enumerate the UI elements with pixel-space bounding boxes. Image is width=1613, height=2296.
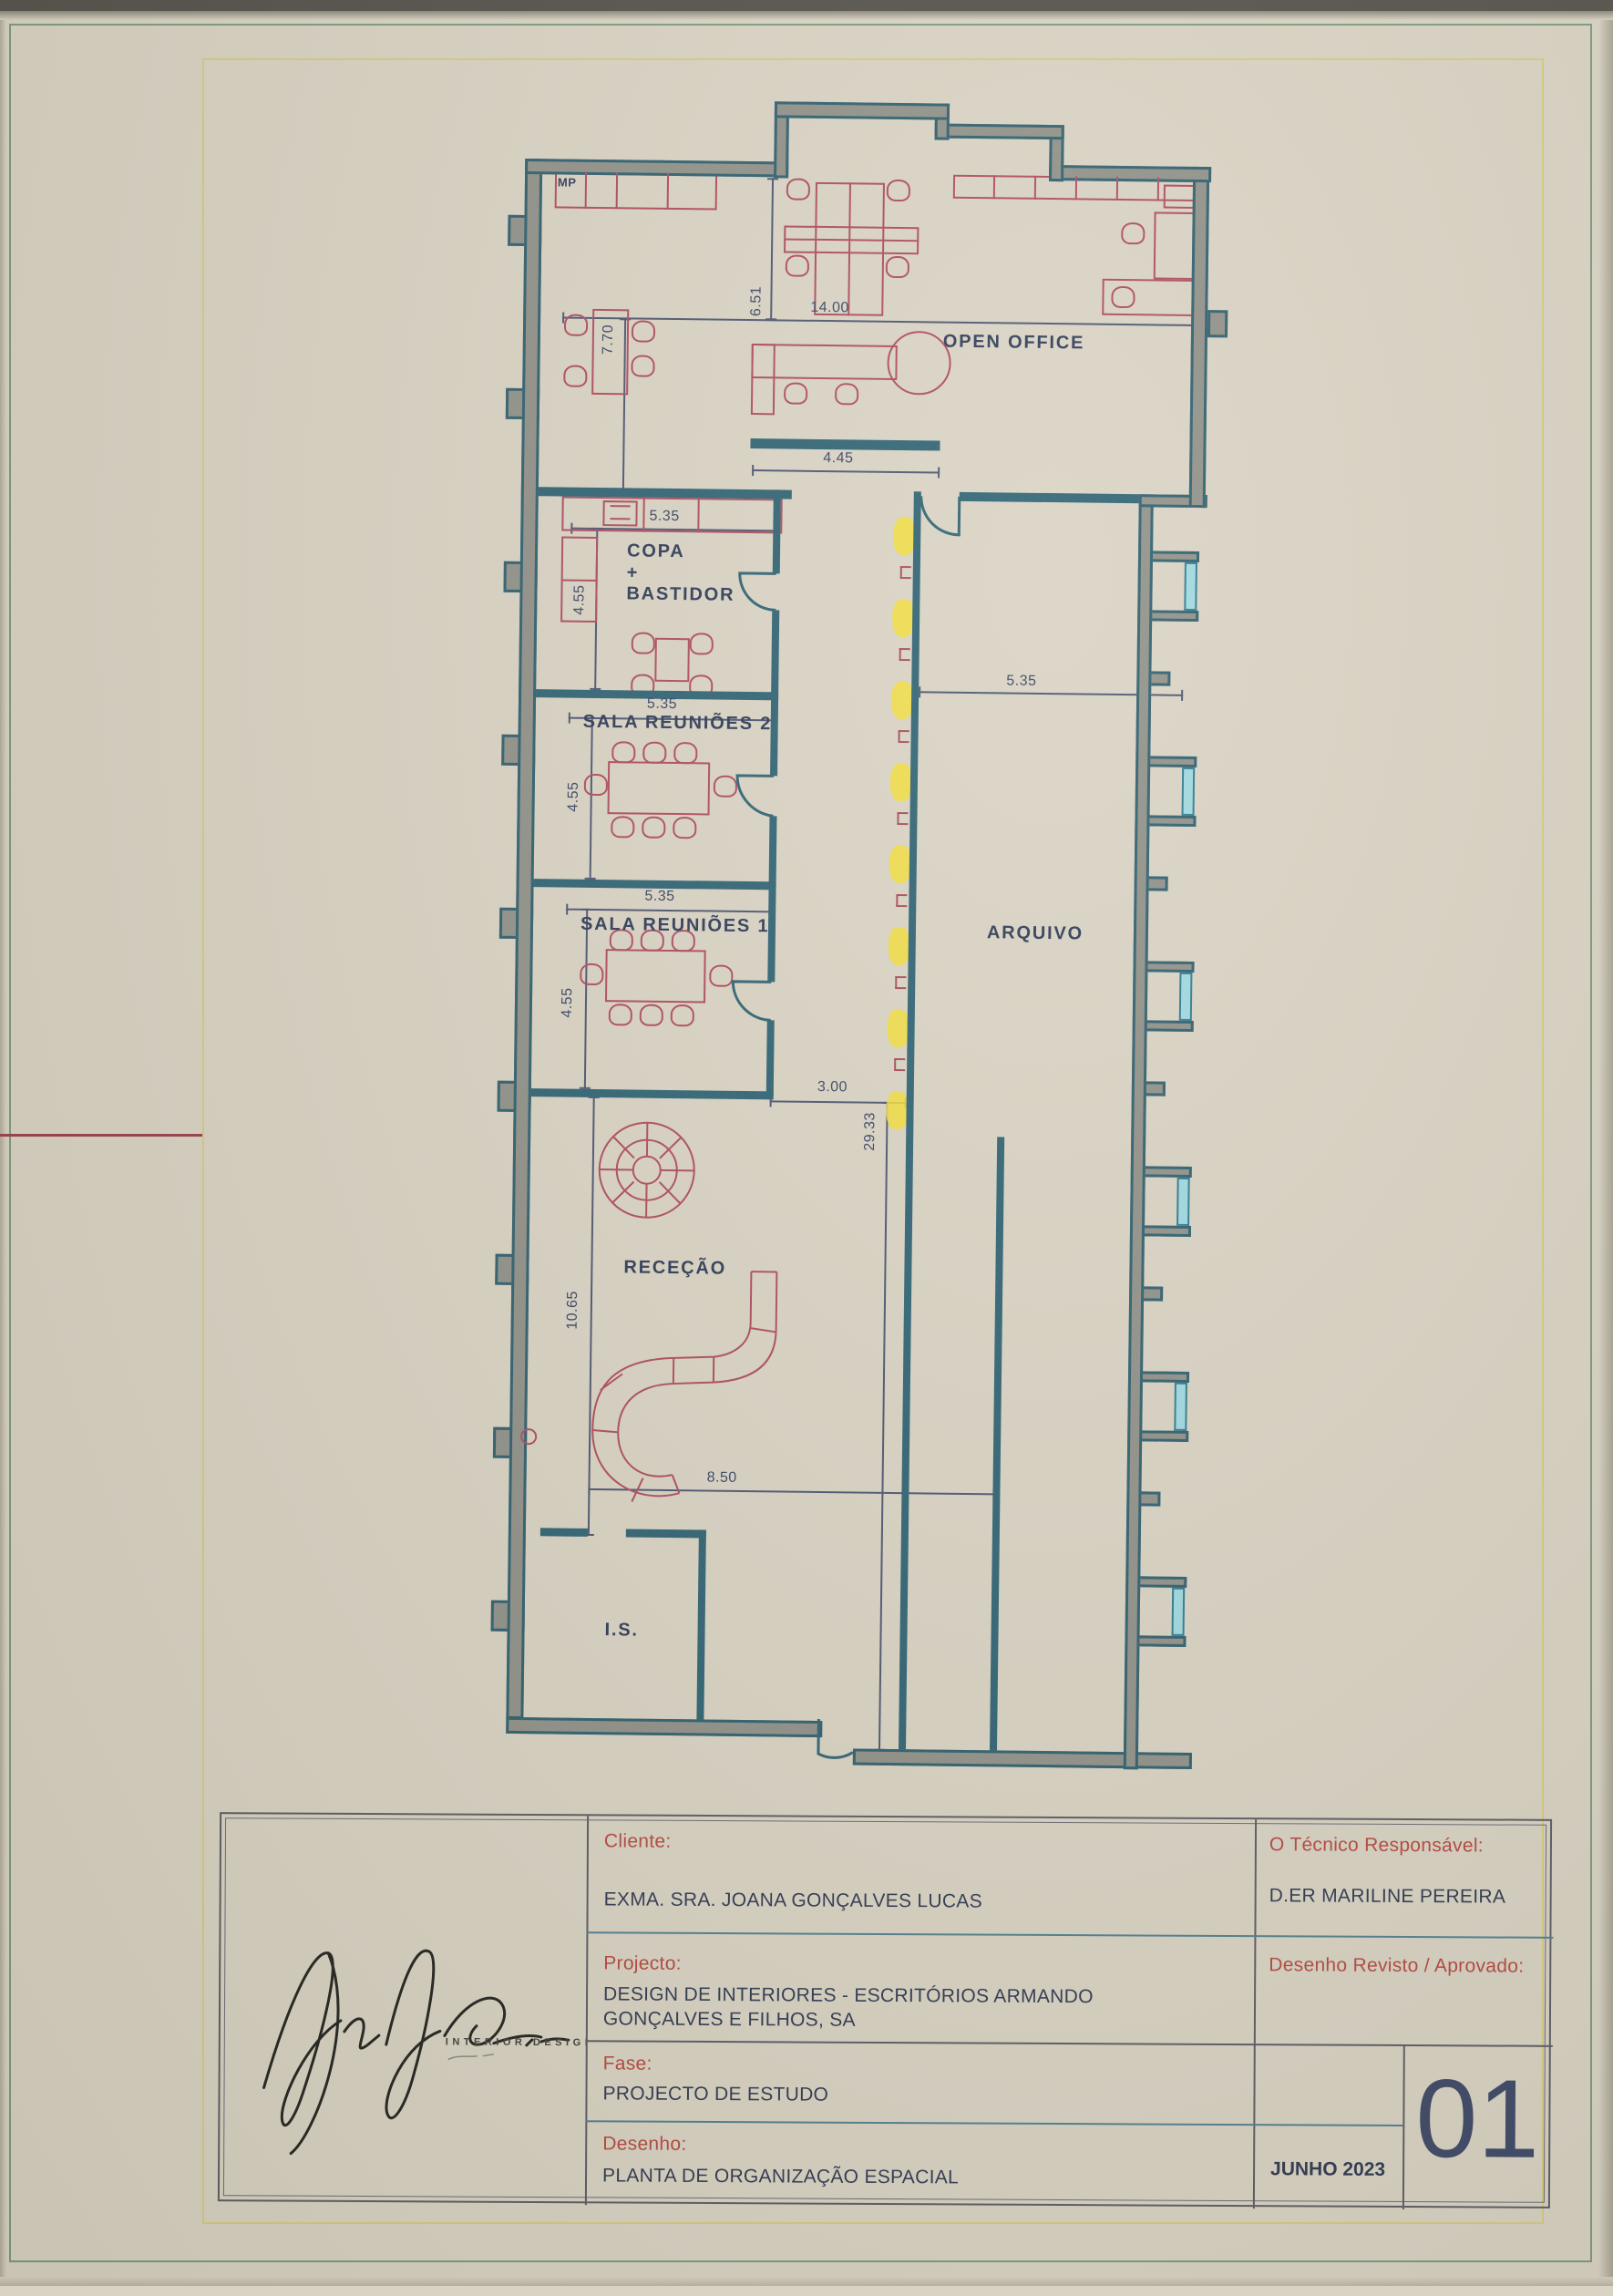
- room-label-copa: COPA: [627, 541, 685, 562]
- revisto-label: Desenho Revisto / Aprovado:: [1269, 1954, 1524, 1977]
- door-swings: [724, 494, 960, 1759]
- room-label-sala-reunioes-2: SALA REUNIÕES 2: [583, 712, 773, 736]
- tecnico-value: D.ER MARILINE PEREIRA: [1269, 1885, 1506, 1908]
- cliente-value: EXMA. SRA. JOANA GONÇALVES LUCAS: [604, 1889, 982, 1912]
- room-label-sala-reunioes-1: SALA REUNIÕES 1: [580, 914, 770, 938]
- dim-6-51: 6.51: [748, 286, 765, 316]
- dim-corridor-width: 3.00: [817, 1079, 848, 1096]
- photographed-floor-plan-sheet: { "plan": { "rooms": { "open_office": "O…: [0, 0, 1613, 2286]
- projecto-value-line2: GONÇALVES E FILHOS, SA: [603, 2008, 856, 2031]
- dim-sr2-width: 5.35: [647, 696, 677, 713]
- sheet-number: 01: [1402, 2063, 1553, 2175]
- desenho-label: Desenho:: [602, 2133, 686, 2155]
- dim-copa-width: 5.35: [649, 509, 679, 525]
- dim-copa-depth: 4.55: [571, 584, 588, 614]
- dim-rececao-width: 8.50: [707, 1470, 737, 1487]
- dim-sr2-depth: 4.55: [566, 781, 582, 811]
- room-label-mp: MP: [558, 175, 577, 189]
- dim-14-00: 14.00: [810, 300, 849, 317]
- projecto-label: Projecto:: [603, 1952, 682, 1974]
- room-label-is: I.S.: [604, 1620, 638, 1641]
- signature: [263, 1950, 569, 2155]
- cliente-label: Cliente:: [604, 1830, 672, 1852]
- room-label-copa-plus: +: [627, 562, 640, 583]
- dim-4-45: 4.45: [823, 450, 853, 467]
- desenho-value: PLANTA DE ORGANIZAÇÃO ESPACIAL: [602, 2165, 959, 2188]
- reception-desk: [618, 1270, 777, 1477]
- logo-cell: INTERIOR DESIGN: [220, 1814, 587, 2205]
- room-label-open-office: OPEN OFFICE: [943, 332, 1085, 355]
- dim-7-70: 7.70: [601, 324, 617, 355]
- room-label-bastidor: BASTIDOR: [626, 583, 735, 605]
- fase-value: PROJECTO DE ESTUDO: [602, 2083, 828, 2106]
- logo-sub-squiggle: [448, 2054, 494, 2059]
- small-fixture: [521, 1429, 536, 1444]
- dim-arquivo-width: 5.35: [1006, 673, 1036, 689]
- dim-rececao-depth: 10.65: [565, 1291, 582, 1330]
- dim-sr1-depth: 4.55: [560, 987, 576, 1017]
- keyhole-desk-end: [888, 332, 950, 395]
- room-label-arquivo: ARQUIVO: [987, 922, 1084, 944]
- room-label-rececao: RECEÇÃO: [623, 1257, 726, 1279]
- logo-caption: INTERIOR DESIGN: [446, 2036, 587, 2048]
- tecnico-label: O Técnico Responsável:: [1269, 1834, 1484, 1857]
- fase-label: Fase:: [603, 2053, 652, 2075]
- dim-sr1-width: 5.35: [644, 889, 674, 905]
- furniture-curves: [520, 170, 1158, 1508]
- dim-corridor-length: 29.33: [862, 1112, 879, 1151]
- date-value: JUNHO 2023: [1259, 2158, 1397, 2181]
- title-block: INTERIOR DESIGN Cliente: EXMA. SRA. JOAN…: [218, 1812, 1552, 2208]
- projecto-value-line1: DESIGN DE INTERIORES - ESCRITÓRIOS ARMAN…: [603, 1983, 1094, 2008]
